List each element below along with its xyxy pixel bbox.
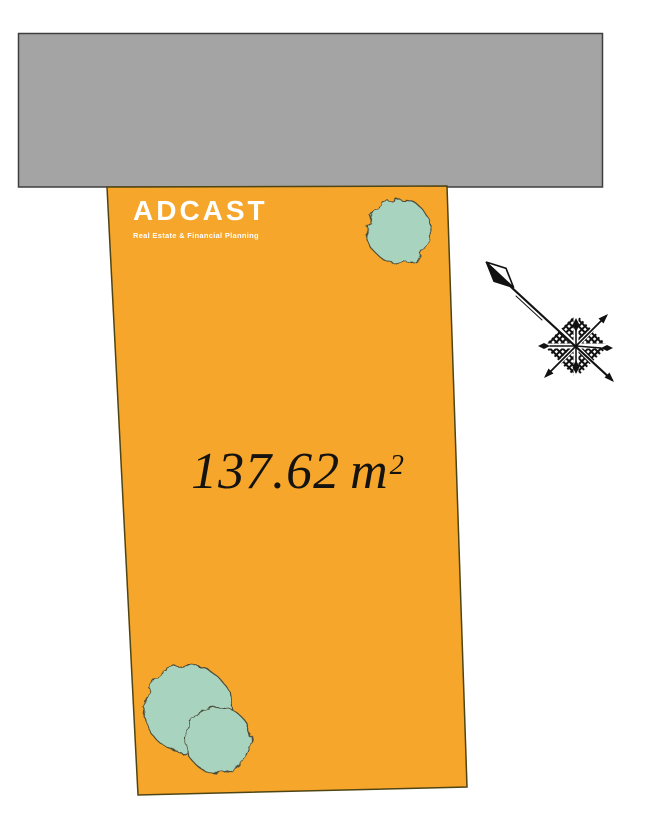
area-unit: m bbox=[350, 443, 389, 500]
brand-name: ADCAST bbox=[133, 196, 268, 227]
tree-icon bbox=[367, 199, 431, 263]
brand-tagline: Real Estate & Financial Planning bbox=[133, 231, 268, 240]
north-compass-icon bbox=[486, 262, 614, 384]
brand-logo: ADCAST Real Estate & Financial Planning bbox=[133, 196, 268, 240]
site-plan-drawing bbox=[0, 0, 656, 820]
parcel-area-label: 137.62m2 bbox=[168, 442, 428, 501]
site-plan: ADCAST Real Estate & Financial Planning … bbox=[0, 0, 656, 820]
area-value: 137.62 bbox=[191, 443, 340, 500]
road-block bbox=[19, 34, 603, 188]
area-exponent: 2 bbox=[390, 450, 405, 481]
tree-icon bbox=[185, 707, 251, 773]
